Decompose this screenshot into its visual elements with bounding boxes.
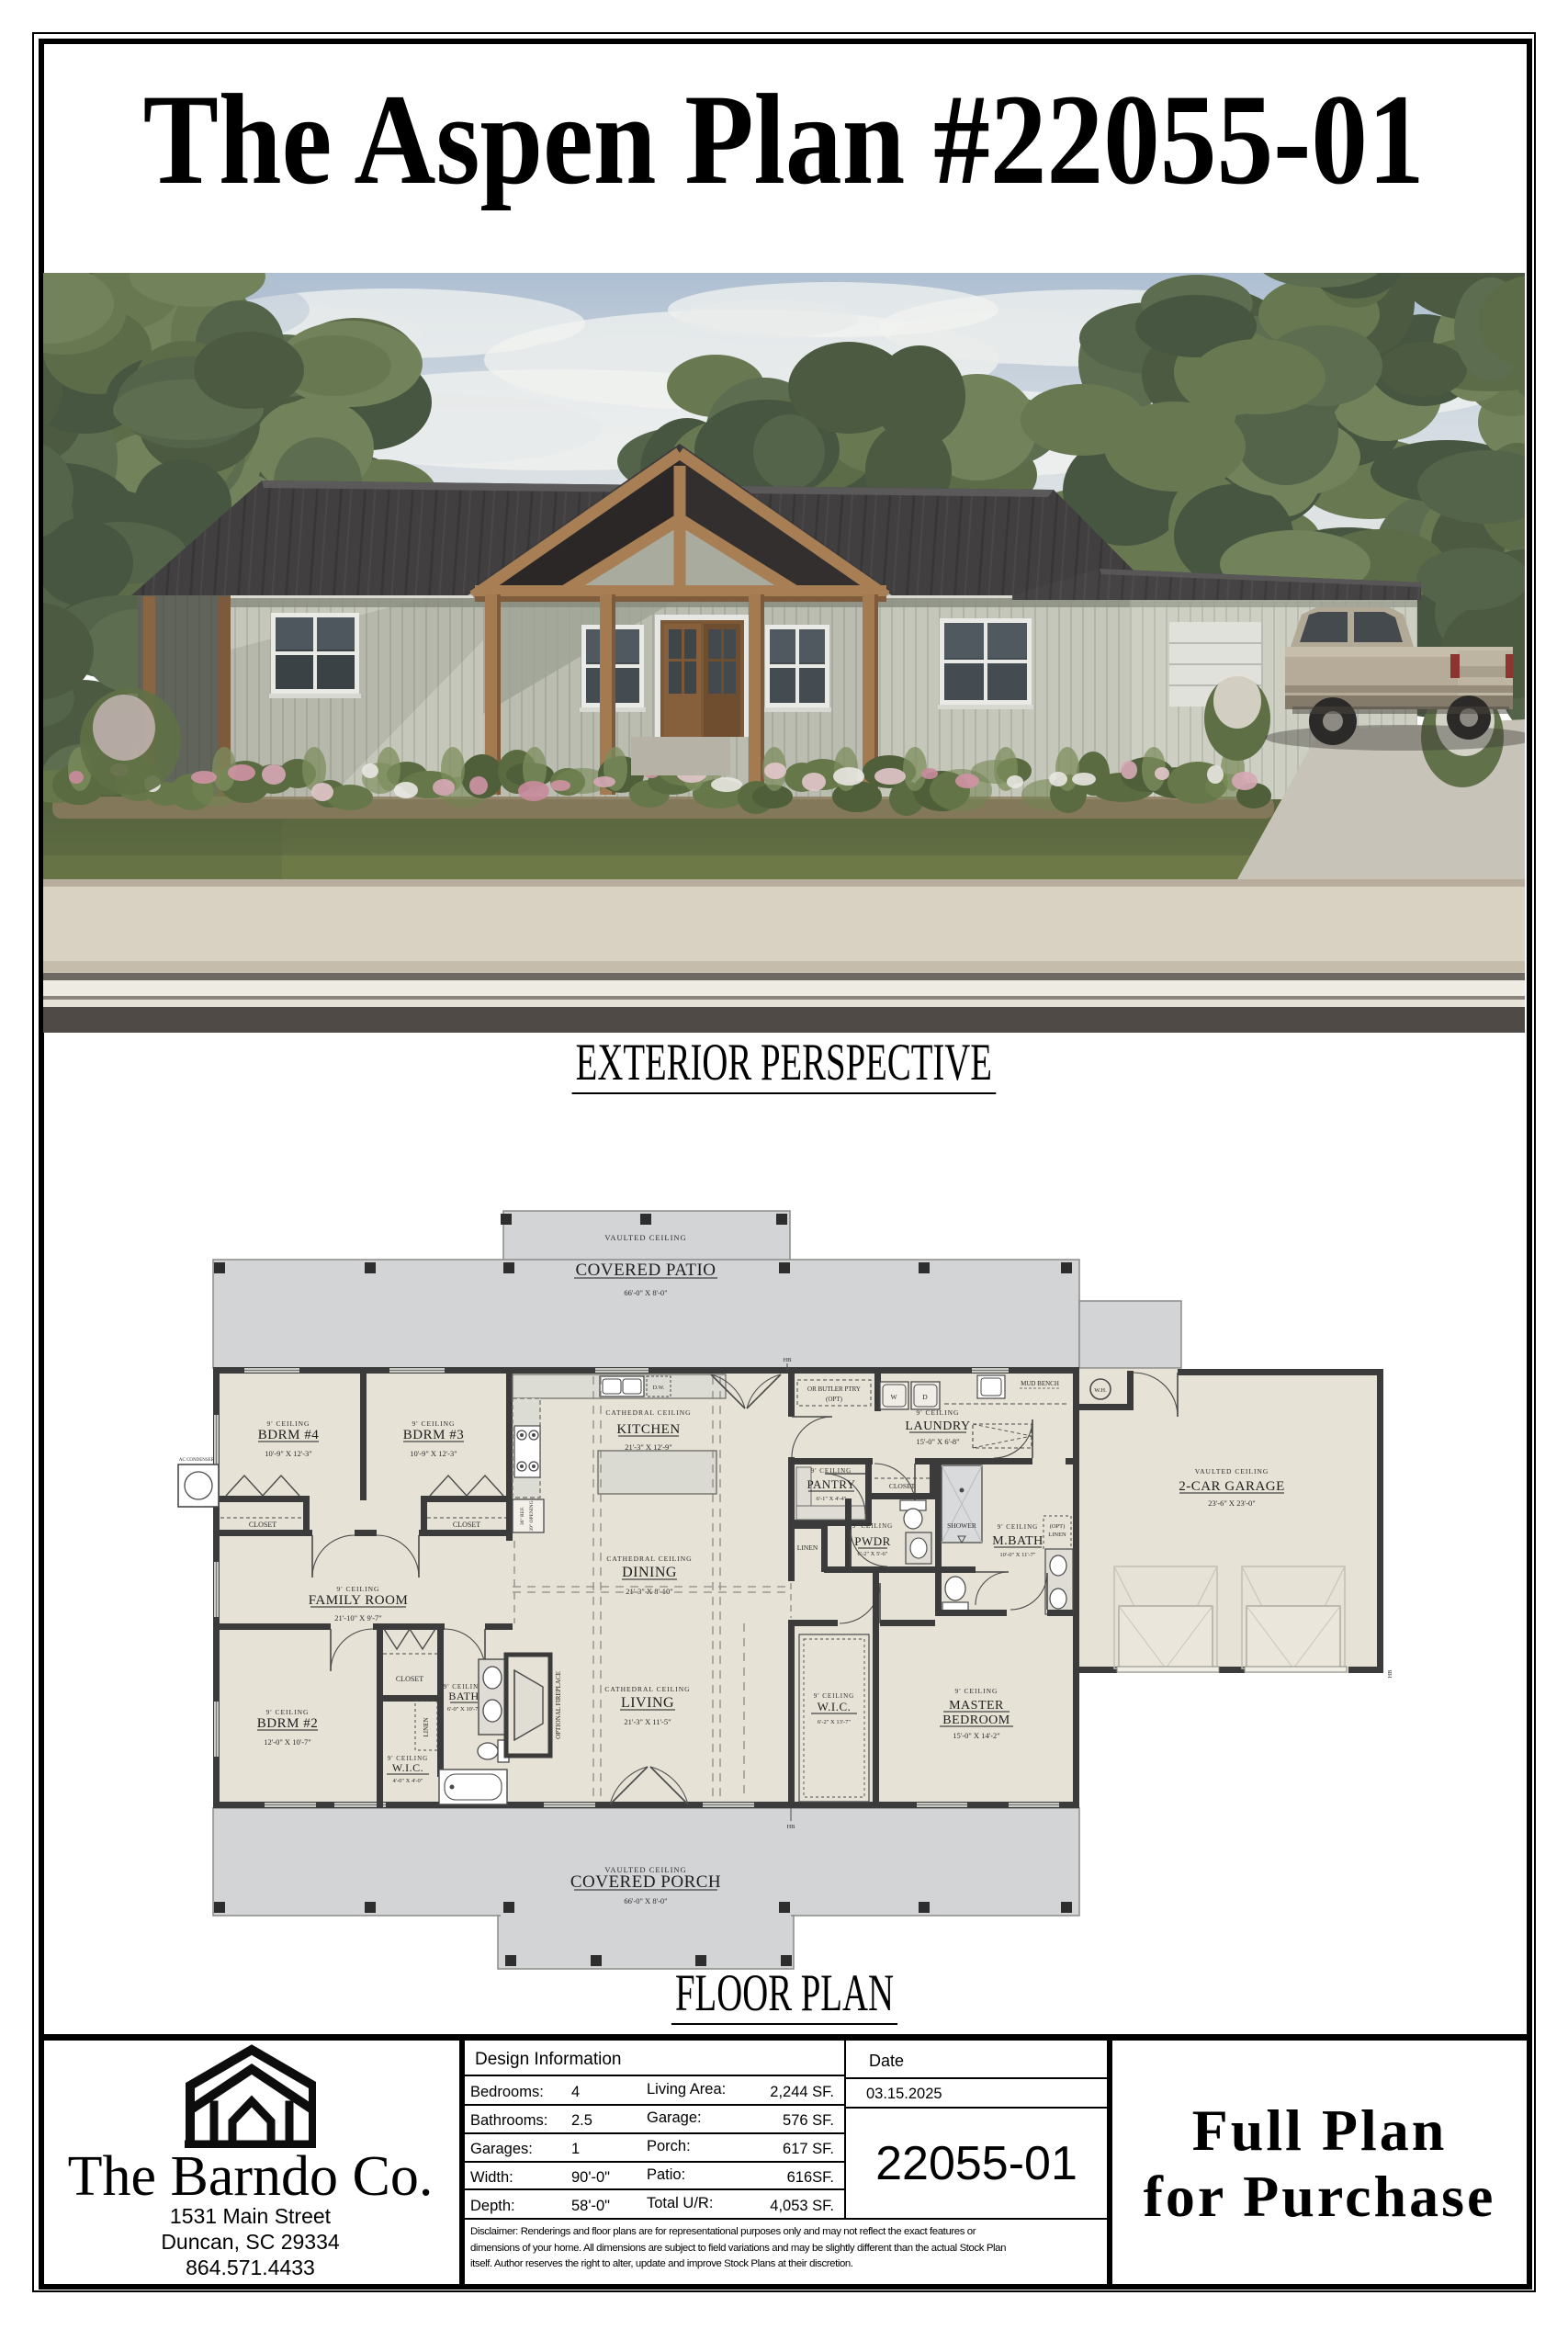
svg-text:MASTER: MASTER xyxy=(949,1699,1004,1713)
svg-text:BDRM #2: BDRM #2 xyxy=(257,1716,318,1731)
svg-text:(OPT): (OPT) xyxy=(1050,1523,1066,1530)
svg-text:W.I.C.: W.I.C. xyxy=(818,1700,852,1713)
svg-text:HB: HB xyxy=(783,1357,792,1363)
svg-text:9' CEILING: 9' CEILING xyxy=(266,1708,310,1716)
svg-text:10'-0" X 11'-7": 10'-0" X 11'-7" xyxy=(999,1552,1036,1558)
svg-text:15'-0" X 14'-2": 15'-0" X 14'-2" xyxy=(953,1731,1000,1740)
svg-text:W.I.C.: W.I.C. xyxy=(392,1761,423,1774)
svg-text:LINEN: LINEN xyxy=(1048,1532,1066,1538)
svg-text:21'-3" X 12'-9": 21'-3" X 12'-9" xyxy=(625,1442,672,1452)
svg-text:39" OPENING: 39" OPENING xyxy=(529,1500,535,1531)
svg-text:PWDR: PWDR xyxy=(854,1534,891,1548)
svg-text:9' CEILING: 9' CEILING xyxy=(814,1692,855,1700)
svg-text:(OPT): (OPT) xyxy=(826,1396,843,1403)
svg-text:66'-0" X 8'-0": 66'-0" X 8'-0" xyxy=(624,1288,667,1297)
svg-text:6'-2" X 13'-7": 6'-2" X 13'-7" xyxy=(818,1719,852,1725)
svg-text:9' CEILING: 9' CEILING xyxy=(852,1522,894,1530)
svg-text:6'-0" X 10'-7": 6'-0" X 10'-7" xyxy=(447,1706,481,1713)
svg-text:OPTIONAL FIREPLACE: OPTIONAL FIREPLACE xyxy=(555,1671,562,1739)
svg-text:D: D xyxy=(922,1393,928,1401)
svg-text:9' CEILING: 9' CEILING xyxy=(811,1467,852,1475)
svg-text:VAULTED CEILING: VAULTED CEILING xyxy=(604,1233,686,1242)
svg-text:CLOSET: CLOSET xyxy=(453,1521,480,1529)
svg-text:CATHEDRAL CEILING: CATHEDRAL CEILING xyxy=(605,1408,691,1417)
svg-text:15'-0" X 6'-8": 15'-0" X 6'-8" xyxy=(916,1437,959,1446)
svg-text:9' CEILING: 9' CEILING xyxy=(267,1419,310,1428)
svg-text:COVERED PATIO: COVERED PATIO xyxy=(575,1261,716,1280)
svg-text:DINING: DINING xyxy=(622,1565,677,1580)
svg-text:BDRM #4: BDRM #4 xyxy=(258,1428,319,1442)
svg-text:36" REF.: 36" REF. xyxy=(520,1506,525,1525)
svg-text:21'-3" X 11'-5": 21'-3" X 11'-5" xyxy=(624,1717,671,1726)
svg-text:HB: HB xyxy=(1387,1669,1393,1679)
svg-text:VAULTED CEILING: VAULTED CEILING xyxy=(1195,1467,1269,1476)
svg-text:CLOSET: CLOSET xyxy=(396,1675,423,1683)
svg-text:10'-9" X 12'-3": 10'-9" X 12'-3" xyxy=(410,1449,457,1458)
svg-text:VAULTED CEILING: VAULTED CEILING xyxy=(604,1865,686,1874)
svg-text:AC CONDENSER: AC CONDENSER xyxy=(179,1458,215,1463)
svg-text:BATH: BATH xyxy=(448,1690,479,1702)
svg-text:9' CEILING: 9' CEILING xyxy=(998,1523,1039,1531)
svg-text:LINEN: LINEN xyxy=(423,1718,430,1737)
svg-text:PANTRY: PANTRY xyxy=(807,1477,855,1491)
svg-text:66'-0" X 8'-0": 66'-0" X 8'-0" xyxy=(624,1896,667,1905)
svg-text:LINEN: LINEN xyxy=(797,1543,818,1552)
svg-text:10'-9" X 12'-3": 10'-9" X 12'-3" xyxy=(265,1449,312,1458)
svg-text:6'-1" X 4'-4": 6'-1" X 4'-4" xyxy=(817,1496,847,1502)
svg-text:9' CEILING: 9' CEILING xyxy=(412,1419,456,1428)
svg-text:CATHEDRAL CEILING: CATHEDRAL CEILING xyxy=(606,1555,692,1563)
svg-text:HB: HB xyxy=(786,1824,795,1830)
svg-text:SHOWER: SHOWER xyxy=(947,1521,976,1530)
svg-text:21'-10" X 9'-7": 21'-10" X 9'-7" xyxy=(334,1613,382,1623)
svg-text:9' CEILING: 9' CEILING xyxy=(955,1687,998,1695)
svg-text:21'-3" X 8'-10": 21'-3" X 8'-10" xyxy=(626,1587,673,1596)
svg-text:CATHEDRAL CEILING: CATHEDRAL CEILING xyxy=(604,1685,690,1693)
svg-text:9' CEILING: 9' CEILING xyxy=(917,1408,960,1417)
svg-text:D.W.: D.W. xyxy=(653,1385,665,1391)
svg-text:CLOSET: CLOSET xyxy=(889,1482,916,1490)
svg-text:4'-0" X 4'-0": 4'-0" X 4'-0" xyxy=(393,1778,423,1784)
svg-text:MUD BENCH: MUD BENCH xyxy=(1021,1380,1059,1387)
svg-text:2-CAR GARAGE: 2-CAR GARAGE xyxy=(1179,1479,1285,1494)
svg-text:9' CEILING: 9' CEILING xyxy=(337,1585,380,1593)
svg-text:LAUNDRY: LAUNDRY xyxy=(905,1419,970,1433)
svg-text:12'-0" X 10'-7": 12'-0" X 10'-7" xyxy=(264,1737,311,1747)
svg-text:W: W xyxy=(890,1393,897,1401)
svg-text:LIVING: LIVING xyxy=(621,1695,674,1711)
svg-text:BEDROOM: BEDROOM xyxy=(942,1713,1010,1727)
svg-text:OR BUTLER PTRY: OR BUTLER PTRY xyxy=(807,1385,861,1393)
svg-text:6'-2" X 5'-6": 6'-2" X 5'-6" xyxy=(858,1551,888,1557)
svg-text:23'-6" X 23'-0": 23'-6" X 23'-0" xyxy=(1208,1498,1256,1508)
svg-text:CLOSET: CLOSET xyxy=(249,1521,276,1529)
svg-text:W.H.: W.H. xyxy=(1094,1387,1107,1394)
svg-text:FAMILY ROOM: FAMILY ROOM xyxy=(309,1593,409,1608)
svg-text:M.BATH: M.BATH xyxy=(992,1534,1043,1548)
svg-text:COVERED PORCH: COVERED PORCH xyxy=(570,1872,721,1892)
svg-text:BDRM #3: BDRM #3 xyxy=(403,1428,464,1442)
svg-text:KITCHEN: KITCHEN xyxy=(616,1422,680,1437)
